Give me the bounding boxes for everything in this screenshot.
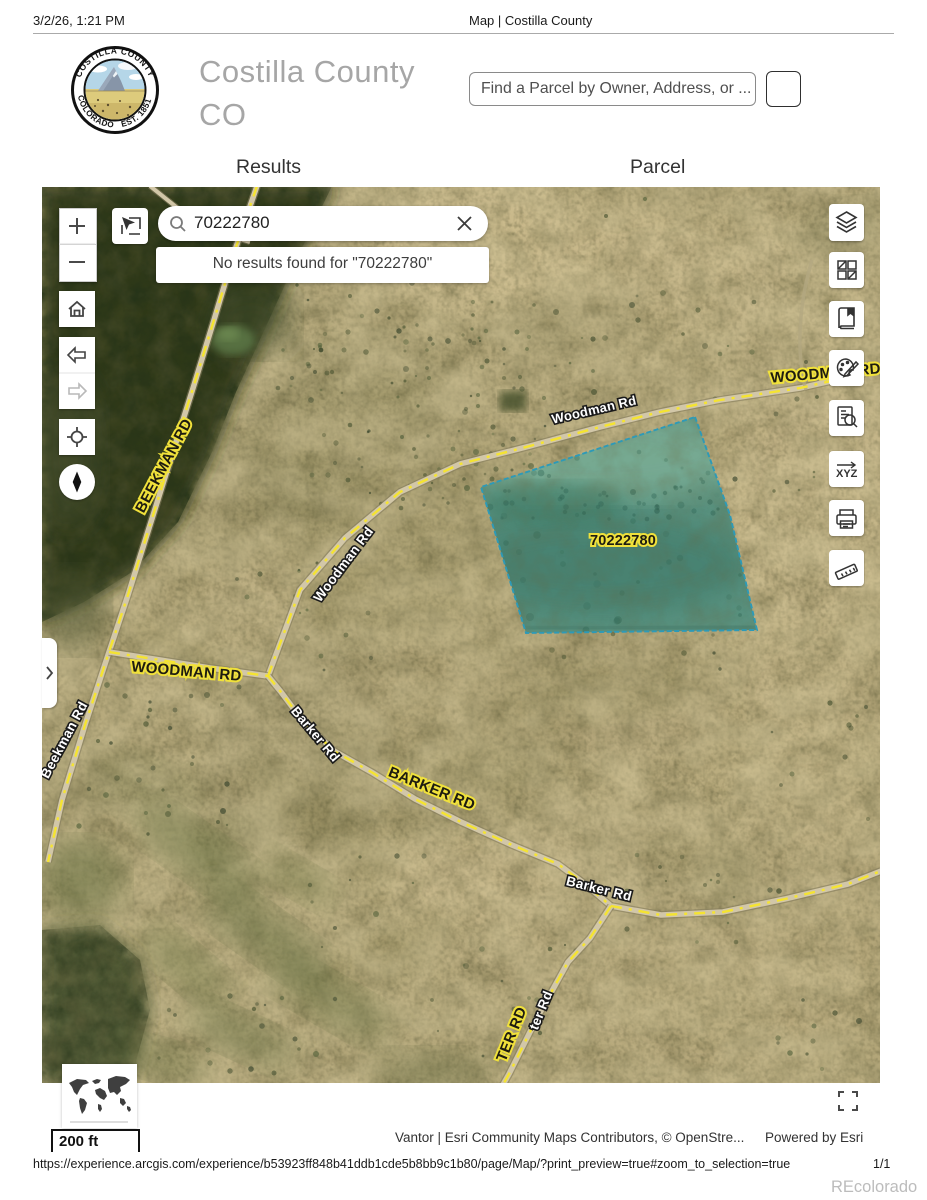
svg-text:XYZ: XYZ bbox=[836, 468, 858, 480]
svg-text:70222780: 70222780 bbox=[590, 533, 656, 549]
